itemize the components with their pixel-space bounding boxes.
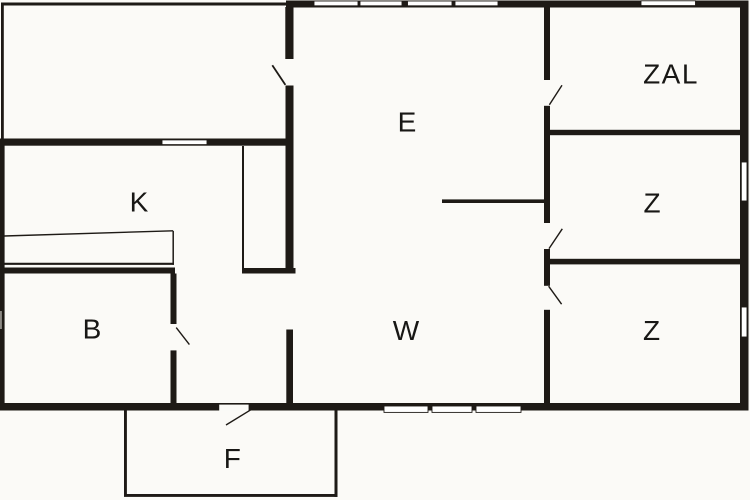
svg-text:W: W (393, 315, 420, 346)
svg-text:ZAL: ZAL (643, 58, 699, 89)
svg-text:K: K (130, 186, 149, 217)
svg-text:Z: Z (643, 315, 660, 346)
svg-text:F: F (224, 443, 241, 474)
svg-text:Z: Z (643, 188, 660, 219)
svg-text:E: E (398, 106, 417, 137)
svg-text:B: B (83, 314, 102, 345)
